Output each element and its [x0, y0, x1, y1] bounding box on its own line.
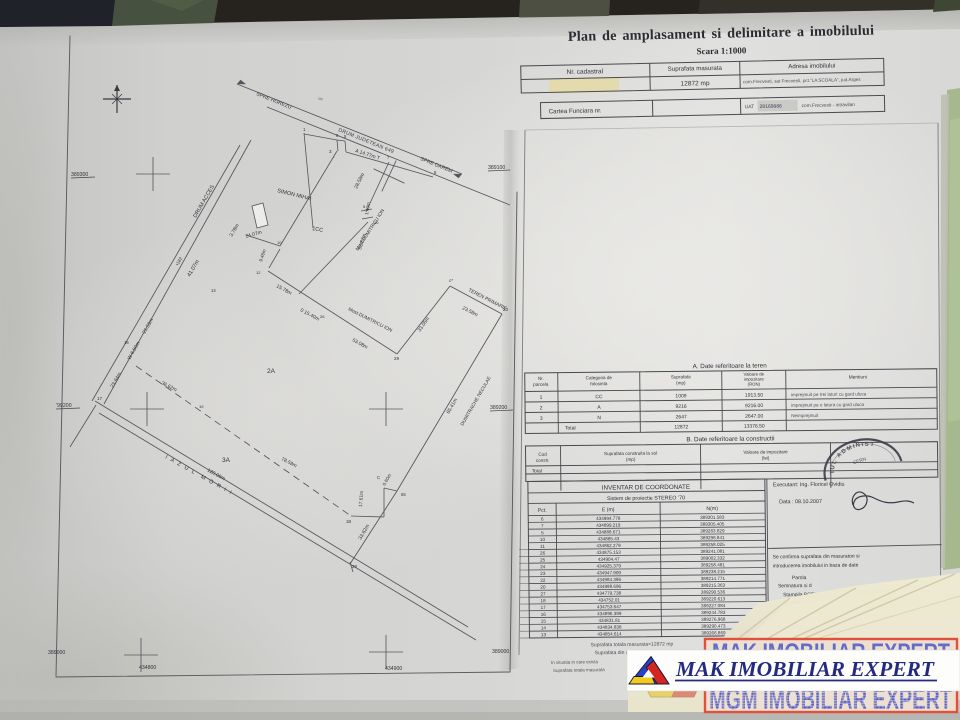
svg-text:434779.738: 434779.738: [597, 591, 622, 596]
svg-text:434834.838: 434834.838: [597, 625, 622, 630]
svg-text:24: 24: [540, 564, 546, 569]
svg-text:434899.219: 434899.219: [596, 523, 621, 528]
svg-text:parcela: parcela: [533, 382, 549, 387]
svg-text:23: 23: [503, 307, 509, 312]
svg-text:N(m): N(m): [706, 506, 718, 512]
svg-text:folosinta: folosinta: [590, 381, 608, 386]
svg-text:389258.025: 389258.025: [700, 542, 725, 547]
svg-text:389266.869: 389266.869: [701, 630, 726, 635]
svg-text:C: C: [377, 475, 380, 480]
svg-text:434925.379: 434925.379: [597, 563, 622, 568]
svg-text:B. Date referitoare la con: B. Date referitoare la constructii: [686, 435, 774, 443]
svg-text:imprejmuit pe o latura cu gard: imprejmuit pe o latura cu gard uluca: [791, 402, 865, 408]
svg-text:Pct.: Pct.: [538, 508, 547, 514]
svg-text:434888.671: 434888.671: [596, 529, 621, 534]
svg-text:434904.47: 434904.47: [598, 557, 620, 562]
svg-text:389305.405: 389305.405: [700, 522, 725, 527]
svg-text:Cod: Cod: [538, 452, 547, 457]
svg-text:N: N: [597, 415, 601, 421]
svg-text:INVENTAR DE COORDONATE: INVENTAR DE COORDONATE: [602, 484, 690, 492]
svg-text:1B: 1B: [346, 519, 351, 524]
svg-text:Semnatura si d: Semnatura si d: [778, 583, 812, 589]
svg-text:389298.841: 389298.841: [700, 535, 725, 540]
svg-text:12: 12: [256, 270, 261, 275]
svg-text:17: 17: [97, 396, 103, 401]
svg-text:389290.536: 389290.536: [701, 590, 726, 595]
svg-text:434998.696: 434998.696: [597, 584, 622, 589]
svg-text:389238.215: 389238.215: [701, 569, 726, 574]
svg-text:434800: 434800: [139, 665, 156, 671]
svg-text:2647.00: 2647.00: [745, 414, 763, 420]
svg-text:27: 27: [540, 591, 546, 596]
svg-text:16: 16: [541, 612, 547, 617]
svg-text:434896.399: 434896.399: [597, 611, 622, 616]
svg-text:29: 29: [394, 356, 400, 361]
svg-text:3A: 3A: [222, 457, 231, 464]
svg-text:In situatia in care exista: In situatia in care exista: [551, 659, 599, 665]
svg-text:12872 mp: 12872 mp: [681, 80, 710, 88]
svg-text:25: 25: [540, 557, 546, 562]
svg-text:13376.50: 13376.50: [744, 423, 765, 429]
svg-text:Mentiuni: Mentiuni: [849, 374, 867, 380]
svg-text:11: 11: [540, 544, 545, 549]
svg-text:Suprafata: Suprafata: [671, 374, 691, 379]
svg-text:434947.909: 434947.909: [597, 570, 622, 575]
svg-text:434854.614: 434854.614: [597, 631, 622, 636]
svg-text:1913.50: 1913.50: [745, 393, 763, 399]
svg-text:23: 23: [540, 571, 546, 576]
svg-text:Categoria de: Categoria de: [586, 375, 613, 380]
svg-text:Executant: Ing. Floricel Ovidi: Executant: Ing. Floricel Ovidiu: [773, 482, 845, 489]
svg-text:434994.778: 434994.778: [596, 516, 621, 521]
svg-text:9216: 9216: [675, 404, 686, 410]
svg-text:15: 15: [541, 619, 547, 624]
svg-text:Total: Total: [565, 425, 576, 431]
svg-text:28169886: 28169886: [760, 104, 783, 110]
svg-text:389000: 389000: [48, 650, 65, 656]
svg-text:E (m): E (m): [602, 507, 615, 513]
svg-text:(RON): (RON): [748, 382, 761, 387]
svg-text:18: 18: [541, 598, 547, 603]
svg-text:Suprafata construita la sol: Suprafata construita la sol: [604, 451, 657, 457]
svg-text:imprejmuit pe trei laturi cu g: imprejmuit pe trei laturi cu gard uluca: [791, 391, 867, 397]
svg-text:2: 2: [540, 405, 543, 411]
svg-text:Data : 08.10.2007: Data : 08.10.2007: [779, 499, 822, 505]
svg-text:389215.363: 389215.363: [701, 583, 726, 588]
svg-text:434862.279: 434862.279: [596, 543, 621, 548]
svg-text:17.61m: 17.61m: [358, 491, 365, 507]
svg-text:2A: 2A: [267, 368, 276, 375]
svg-text:434752.01: 434752.01: [598, 597, 620, 602]
svg-text:Cartea Funciara nr.: Cartea Funciara nr.: [549, 107, 602, 115]
svg-text:55: 55: [401, 492, 406, 497]
svg-text:Adresa imobilului: Adresa imobilului: [788, 62, 835, 70]
svg-text:10: 10: [540, 537, 546, 542]
svg-text:389283.829: 389283.829: [700, 528, 725, 533]
svg-text:9216.00: 9216.00: [745, 403, 763, 409]
svg-text:14: 14: [211, 288, 216, 293]
svg-text:Sistem de proiectie STEREO: Sistem de proiectie STEREO ’70: [607, 495, 685, 502]
svg-text:3: 3: [540, 416, 543, 422]
svg-text:Suprafata totala masurata=12: Suprafata totala masurata=12872 mp: [591, 641, 674, 648]
svg-text:434831.81: 434831.81: [598, 618, 620, 623]
svg-text:com.Frecvesti - intravilan: com.Frecvesti - intravilan: [802, 102, 856, 109]
svg-text:19: 19: [199, 404, 204, 409]
svg-text:434875.153: 434875.153: [596, 550, 621, 555]
svg-text:389000: 389000: [492, 649, 509, 655]
svg-text:(mp): (mp): [626, 457, 636, 462]
svg-text:introducerea imobilului in: introducerea imobilului in baza de date: [773, 563, 859, 570]
svg-text:389276.968: 389276.968: [701, 617, 726, 622]
svg-text:20: 20: [540, 585, 546, 590]
svg-text:389244.783: 389244.783: [701, 610, 726, 615]
svg-text:Neimprejmuit: Neimprejmuit: [791, 413, 819, 418]
svg-text:389290.473: 389290.473: [701, 624, 726, 629]
svg-text:Scara 1:1000: Scara 1:1000: [696, 45, 746, 56]
svg-text:434984.396: 434984.396: [597, 577, 622, 582]
svg-text:c*: c*: [449, 278, 453, 283]
svg-text:389214.771: 389214.771: [701, 576, 726, 581]
svg-text:434753.647: 434753.647: [597, 604, 622, 609]
svg-text:389301.583: 389301.583: [700, 515, 725, 520]
svg-text:14: 14: [541, 625, 547, 630]
svg-text:389220.613: 389220.613: [701, 596, 726, 601]
svg-text:389258.481: 389258.481: [701, 562, 726, 567]
svg-text:Total: Total: [532, 468, 542, 474]
svg-text:MAK IMOBILIAR EXPERT: MAK IMOBILIAR EXPERT: [675, 657, 935, 681]
svg-text:389227.084: 389227.084: [701, 603, 726, 608]
svg-text:Nr. cadastral: Nr. cadastral: [567, 68, 604, 76]
svg-text:Valoare de impozitare: Valoare de impozitare: [743, 449, 788, 454]
svg-text:10: 10: [277, 240, 282, 245]
svg-text:2647: 2647: [676, 414, 687, 420]
svg-text:434900: 434900: [385, 666, 402, 672]
svg-text:Suprafata masurata: Suprafata masurata: [668, 65, 723, 73]
svg-text:1: 1: [540, 395, 543, 401]
svg-text:13: 13: [541, 632, 547, 637]
svg-text:Suprafata totala masurata: Suprafata totala masurata: [553, 667, 605, 673]
svg-text:26: 26: [320, 314, 325, 319]
svg-text:Parola: Parola: [792, 575, 807, 581]
svg-text:12872: 12872: [674, 424, 688, 430]
svg-text:constr.: constr.: [536, 458, 550, 463]
svg-text:Nr.: Nr.: [538, 376, 544, 381]
svg-text:Se confirma suprafata din: Se confirma suprafata din masuratori si: [773, 554, 860, 561]
svg-text:22: 22: [540, 578, 546, 583]
svg-text:A. Date referitoare la ter: A. Date referitoare la teren: [693, 362, 768, 370]
svg-text:389002.332: 389002.332: [701, 556, 726, 561]
svg-text:(mp): (mp): [676, 380, 686, 385]
svg-text:UAT: UAT: [745, 104, 755, 110]
svg-text:17: 17: [541, 605, 547, 610]
svg-text:434885.43: 434885.43: [598, 536, 620, 541]
svg-text:(lei): (lei): [762, 455, 770, 460]
svg-text:1009: 1009: [675, 393, 686, 399]
svg-text:CC: CC: [595, 394, 603, 400]
svg-text:16: 16: [124, 340, 129, 345]
svg-text:26: 26: [540, 551, 546, 556]
svg-text:389241.081: 389241.081: [700, 549, 725, 554]
